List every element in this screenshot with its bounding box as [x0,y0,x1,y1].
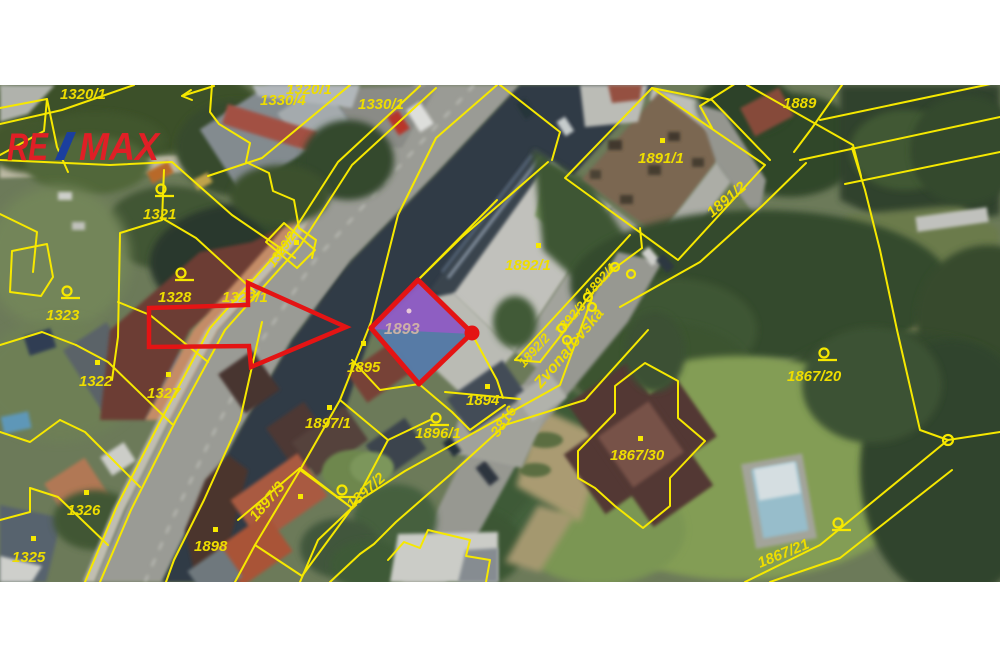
svg-text:1320/1: 1320/1 [60,86,106,103]
svg-text:1894: 1894 [466,392,500,409]
svg-text:1330/1: 1330/1 [358,96,404,113]
svg-text:1893: 1893 [384,321,420,338]
svg-text:1895: 1895 [347,359,381,376]
svg-text:1327: 1327 [147,385,181,402]
svg-text:1891/1: 1891/1 [638,150,684,167]
svg-text:1896/1: 1896/1 [415,425,461,442]
svg-text:1325: 1325 [12,549,46,566]
svg-text:1898: 1898 [194,538,228,555]
svg-text:1889: 1889 [783,95,817,112]
svg-text:1330/4: 1330/4 [260,92,307,109]
svg-text:1867/30: 1867/30 [610,447,665,464]
svg-text:RE: RE [7,126,49,169]
svg-text:1892/1: 1892/1 [505,257,551,274]
svg-text:1321: 1321 [143,206,176,223]
svg-text:1867/20: 1867/20 [787,368,842,385]
svg-text:1328: 1328 [158,289,192,306]
svg-text:1897/1: 1897/1 [305,415,351,432]
svg-text:1323: 1323 [46,307,80,324]
svg-text:MAX: MAX [79,126,161,169]
svg-text:1322: 1322 [79,373,113,390]
svg-text:1326: 1326 [67,502,101,519]
